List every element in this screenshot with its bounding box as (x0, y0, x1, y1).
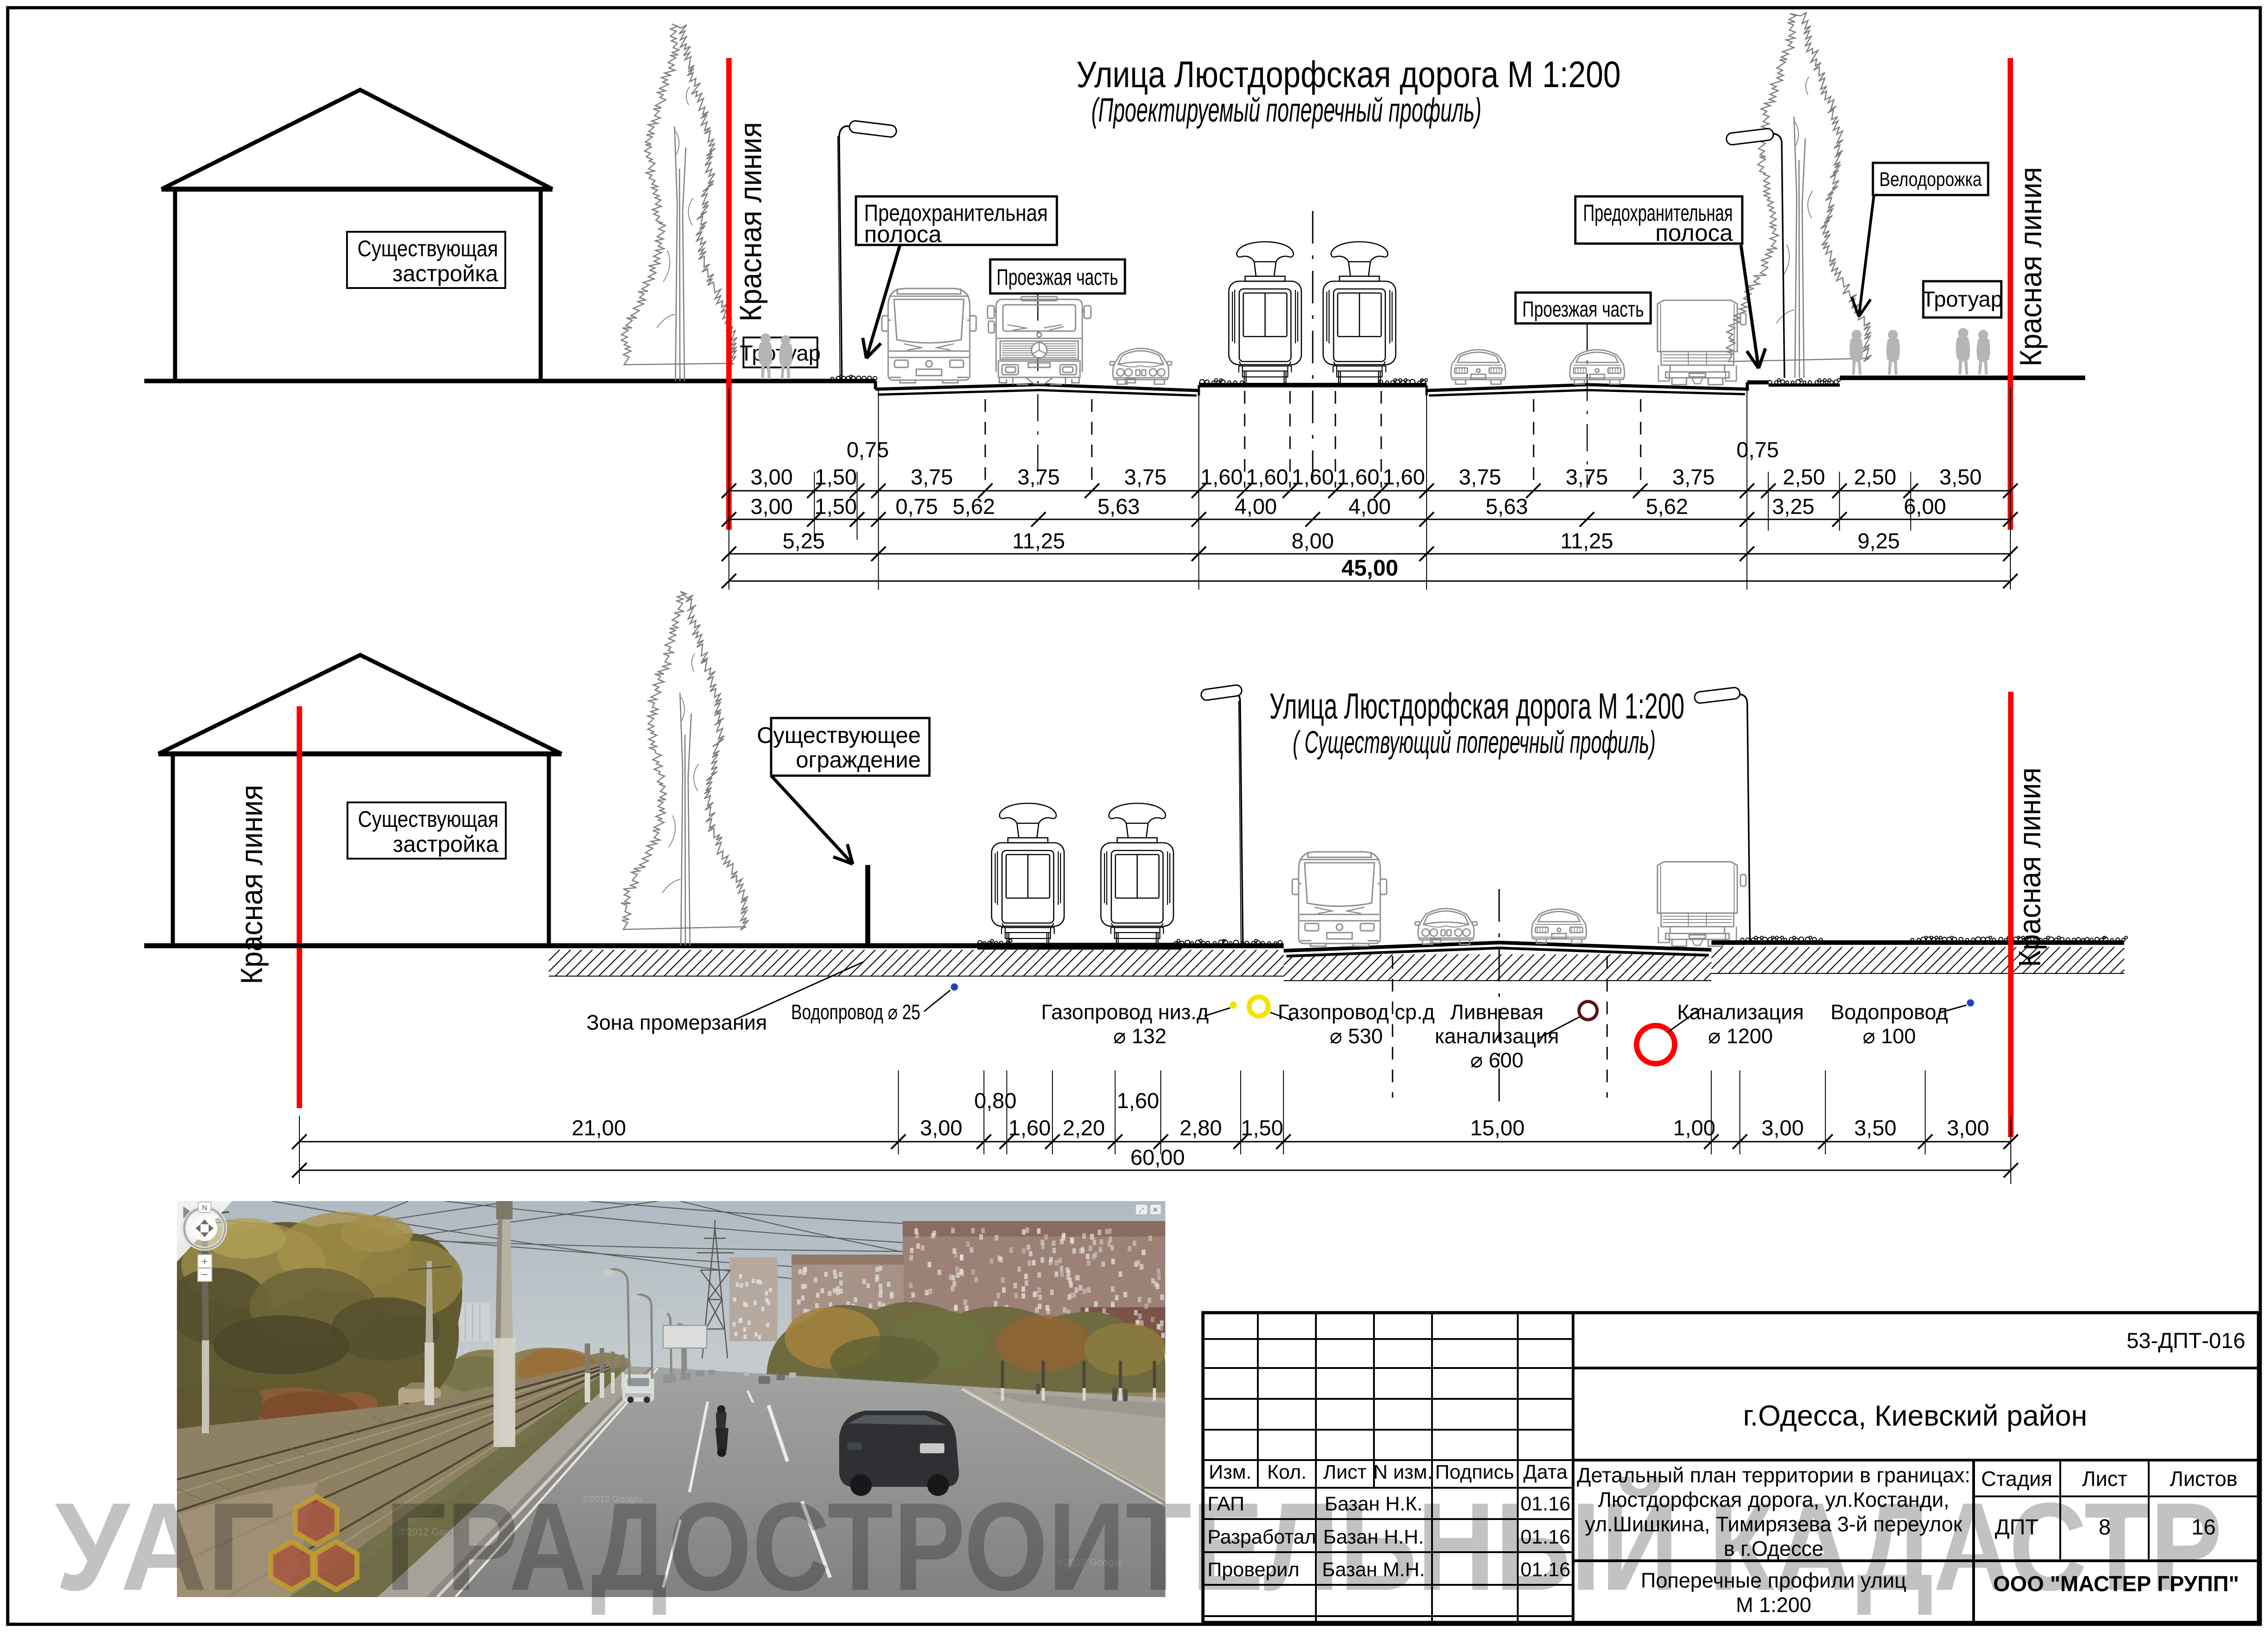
svg-text:3,75: 3,75 (911, 465, 953, 489)
svg-text:21,00: 21,00 (572, 1116, 626, 1140)
svg-text:4,00: 4,00 (1235, 495, 1277, 519)
svg-text:застройка: застройка (392, 261, 498, 286)
svg-text:Существующая: Существующая (357, 236, 498, 261)
svg-text:+: + (201, 1255, 208, 1268)
svg-text:5,62: 5,62 (953, 495, 995, 519)
svg-text:3,00: 3,00 (920, 1116, 962, 1140)
svg-text:Газопровод ср.д: Газопровод ср.д (1278, 1000, 1435, 1024)
svg-text:Проезжая часть: Проезжая часть (1522, 298, 1644, 322)
svg-text:1,60: 1,60 (1383, 465, 1425, 489)
svg-text:5,63: 5,63 (1486, 495, 1528, 519)
svg-text:15,00: 15,00 (1470, 1116, 1525, 1140)
svg-text:1,60: 1,60 (1008, 1116, 1051, 1140)
svg-text:Существующая: Существующая (358, 806, 499, 832)
svg-text:1,50: 1,50 (815, 495, 857, 519)
svg-text:3,00: 3,00 (750, 465, 792, 489)
svg-text:1,60: 1,60 (1117, 1089, 1159, 1113)
svg-text:2,50: 2,50 (1854, 465, 1896, 489)
svg-text:Улица Люстдорфская дорога М 1:: Улица Люстдорфская дорога М 1:200 (1076, 54, 1621, 95)
svg-text:Существующее: Существующее (757, 723, 921, 748)
svg-text:0,75: 0,75 (1736, 438, 1779, 462)
svg-text:⌀ 132: ⌀ 132 (1113, 1024, 1166, 1048)
svg-text:2,20: 2,20 (1063, 1116, 1105, 1140)
svg-text:Красная линия: Красная линия (2013, 767, 2047, 967)
svg-text:3,75: 3,75 (1017, 465, 1060, 489)
svg-text:канализация: канализация (1435, 1024, 1559, 1048)
svg-text:4,00: 4,00 (1349, 495, 1391, 519)
svg-text:Проезжая часть: Проезжая часть (997, 264, 1118, 290)
svg-text:⌀ 100: ⌀ 100 (1862, 1024, 1916, 1048)
svg-text:3,75: 3,75 (1565, 465, 1608, 489)
svg-text:Красная линия: Красная линия (235, 785, 269, 984)
svg-text:1,50: 1,50 (1241, 1116, 1283, 1140)
svg-text:Велодорожка: Велодорожка (1879, 168, 1982, 191)
svg-text:5,62: 5,62 (1646, 495, 1688, 519)
svg-text:0,80: 0,80 (974, 1089, 1017, 1113)
svg-text:1,60: 1,60 (1291, 465, 1334, 489)
svg-text:5,25: 5,25 (782, 529, 825, 553)
svg-text:9,25: 9,25 (1857, 529, 1900, 553)
svg-text:Газопровод низ.д: Газопровод низ.д (1041, 1000, 1209, 1024)
svg-text:3,75: 3,75 (1672, 465, 1715, 489)
svg-text:8,00: 8,00 (1291, 529, 1334, 553)
svg-text:ГРАДОСТРОИТЕЛЬНЫЙ КАДАСТР: ГРАДОСТРОИТЕЛЬНЫЙ КАДАСТР (385, 1476, 2222, 1617)
svg-text:1,60: 1,60 (1246, 465, 1288, 489)
svg-text:3,50: 3,50 (1854, 1116, 1897, 1140)
svg-text:застройка: застройка (393, 831, 499, 857)
svg-text:53-ДПТ-016: 53-ДПТ-016 (2126, 1329, 2245, 1353)
svg-text:N: N (202, 1204, 207, 1212)
svg-text:⤢: ⤢ (1139, 1207, 1144, 1214)
svg-text:3,25: 3,25 (1772, 495, 1814, 519)
svg-text:г.Одесса, Киевский район: г.Одесса, Киевский район (1743, 1399, 2087, 1432)
svg-text:1,60: 1,60 (1337, 465, 1379, 489)
svg-text:3,75: 3,75 (1124, 465, 1166, 489)
svg-text:Водопровод ⌀ 25: Водопровод ⌀ 25 (791, 1000, 920, 1024)
svg-text:Водопровод: Водопровод (1830, 1000, 1948, 1024)
svg-text:1,00: 1,00 (1673, 1116, 1715, 1140)
svg-text:Красная линия: Красная линия (2014, 167, 2048, 366)
svg-text:1,50: 1,50 (815, 465, 857, 489)
svg-text:Канализация: Канализация (1677, 1000, 1804, 1024)
svg-text:Ливневая: Ливневая (1450, 1000, 1544, 1024)
svg-text:полоса: полоса (1655, 220, 1733, 246)
svg-text:⌀ 600: ⌀ 600 (1470, 1048, 1523, 1072)
svg-text:3,50: 3,50 (1939, 465, 1981, 489)
svg-text:⌀ 530: ⌀ 530 (1330, 1024, 1383, 1048)
svg-text:6,00: 6,00 (1904, 495, 1946, 519)
svg-text:60,00: 60,00 (1130, 1146, 1185, 1170)
svg-text:11,25: 11,25 (1560, 529, 1613, 553)
svg-text:−: − (201, 1268, 208, 1281)
svg-text:полоса: полоса (864, 221, 942, 248)
svg-text:3,75: 3,75 (1459, 465, 1501, 489)
svg-text:0,75: 0,75 (895, 495, 938, 519)
svg-text:Улица Люстдорфская дорога М 1:: Улица Люстдорфская дорога М 1:200 (1270, 686, 1685, 726)
svg-text:(Проектируемый поперечный проф: (Проектируемый поперечный профиль) (1091, 91, 1481, 129)
svg-text:3,00: 3,00 (1761, 1116, 1804, 1140)
svg-text:0,75: 0,75 (846, 438, 889, 462)
svg-text:2,80: 2,80 (1179, 1116, 1222, 1140)
svg-text:Зона промерзания: Зона промерзания (587, 1011, 767, 1034)
svg-text:3,00: 3,00 (1947, 1116, 1989, 1140)
svg-text:УАГ: УАГ (55, 1477, 275, 1617)
svg-text:⌀ 1200: ⌀ 1200 (1708, 1024, 1773, 1048)
svg-text:11,25: 11,25 (1012, 529, 1065, 553)
svg-text:3,00: 3,00 (750, 495, 792, 519)
svg-text:45,00: 45,00 (1341, 555, 1398, 581)
svg-text:Красная линия: Красная линия (733, 122, 768, 322)
svg-text:✕: ✕ (1152, 1206, 1158, 1214)
svg-text:Тротуар: Тротуар (1922, 288, 2003, 312)
svg-text:5,63: 5,63 (1097, 495, 1139, 519)
svg-text:1,60: 1,60 (1200, 465, 1242, 489)
svg-text:ограждение: ограждение (796, 747, 921, 772)
svg-text:2,50: 2,50 (1783, 465, 1825, 489)
svg-text:( Существующий поперечный проф: ( Существующий поперечный профиль) (1293, 724, 1656, 760)
